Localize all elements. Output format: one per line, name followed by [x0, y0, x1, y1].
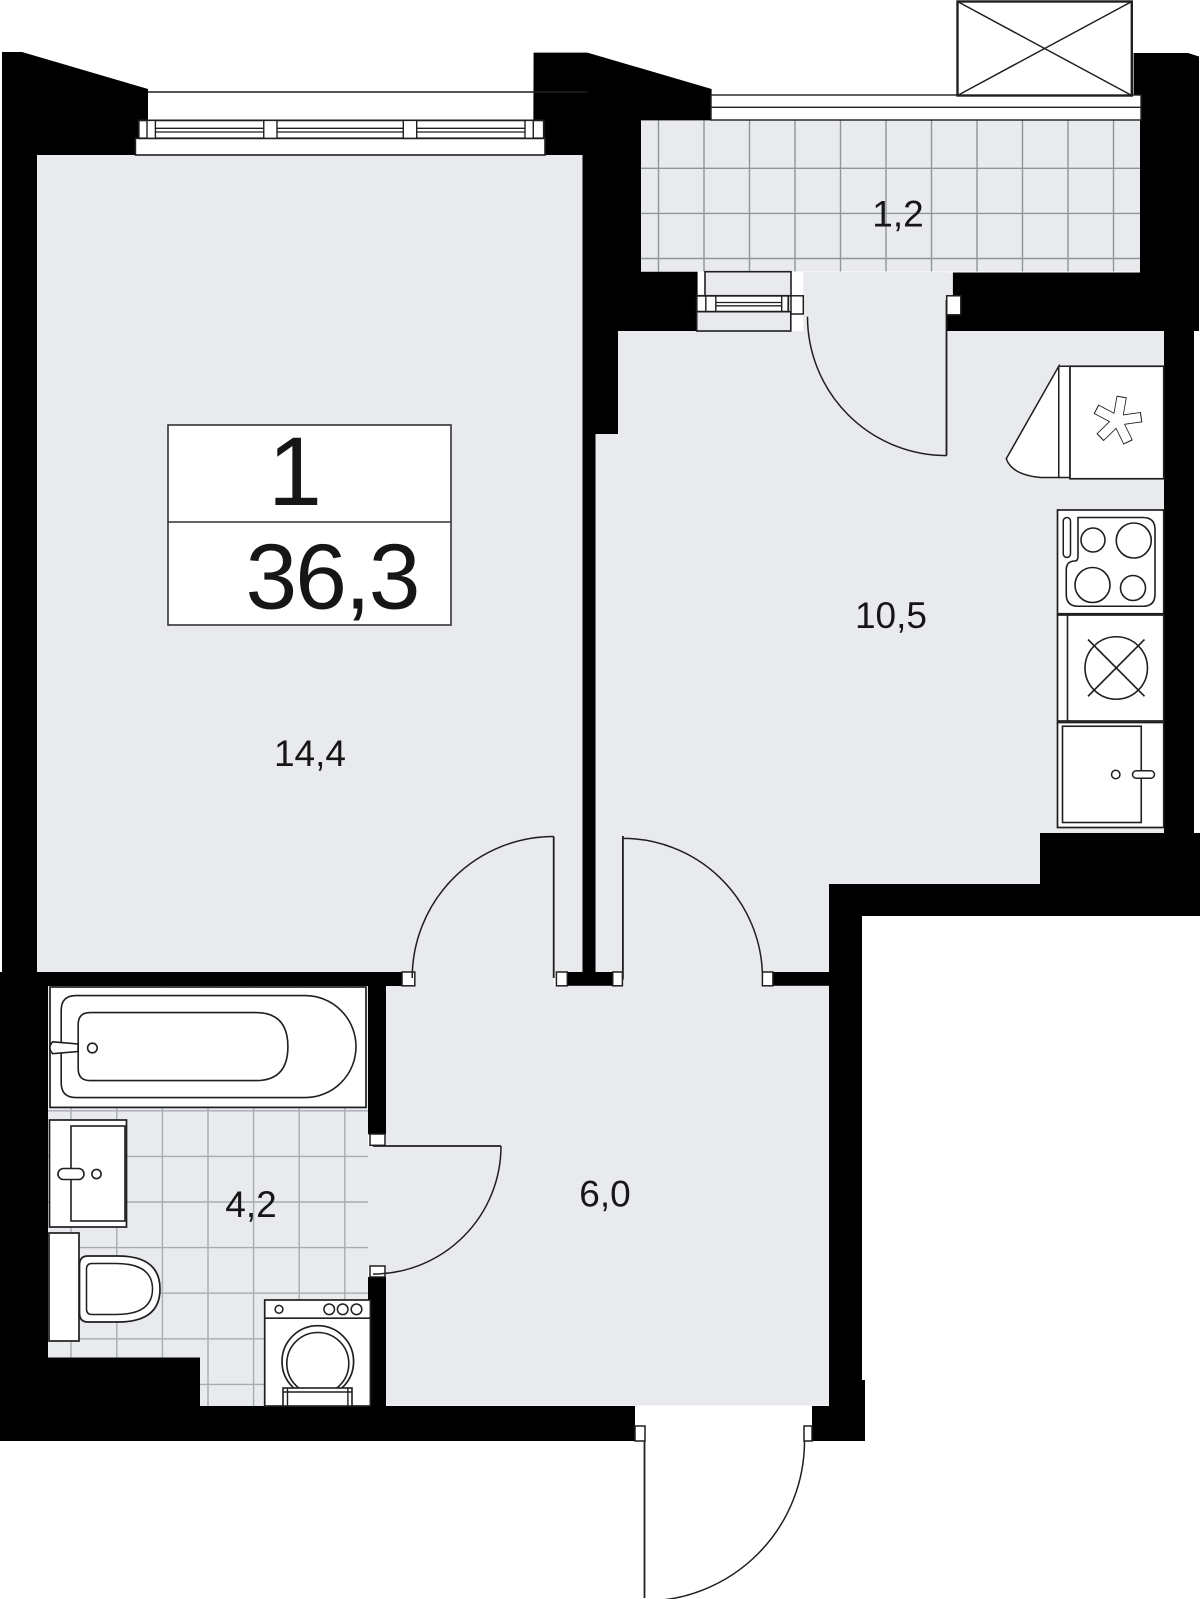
svg-text:14,4: 14,4: [274, 733, 346, 774]
svg-text:1,2: 1,2: [872, 194, 923, 235]
svg-text:4,2: 4,2: [225, 1184, 276, 1225]
svg-text:36,3: 36,3: [245, 525, 418, 629]
svg-text:6,0: 6,0: [579, 1174, 630, 1215]
svg-text:10,5: 10,5: [855, 595, 927, 636]
svg-text:1: 1: [268, 417, 322, 526]
